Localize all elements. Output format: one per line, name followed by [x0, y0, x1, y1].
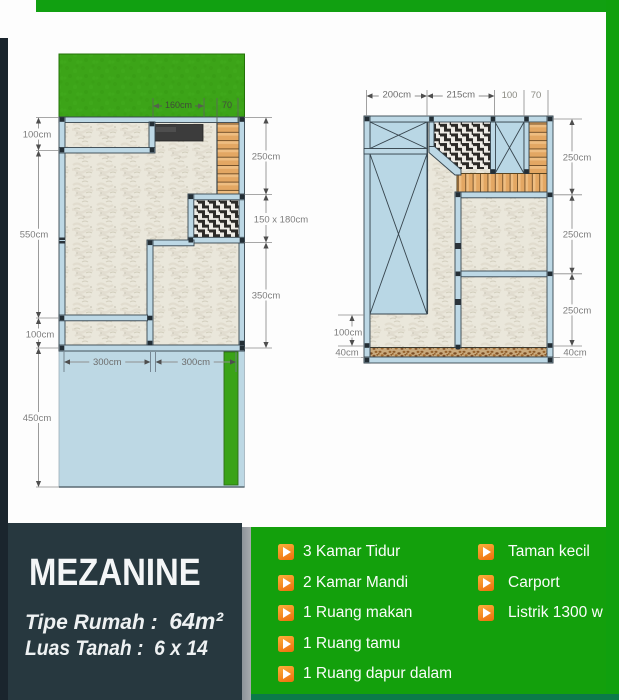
svg-text:215cm: 215cm	[446, 90, 475, 101]
svg-text:70: 70	[222, 100, 232, 110]
svg-text:100cm: 100cm	[334, 327, 363, 338]
svg-text:150 x 180cm: 150 x 180cm	[254, 215, 308, 226]
svg-text:300cm: 300cm	[93, 357, 122, 368]
svg-text:250cm: 250cm	[563, 230, 592, 241]
svg-text:250cm: 250cm	[252, 151, 281, 162]
svg-text:250cm: 250cm	[563, 152, 592, 163]
svg-text:450cm: 450cm	[23, 413, 52, 424]
svg-text:160cm: 160cm	[165, 100, 192, 110]
svg-text:40cm: 40cm	[335, 348, 358, 359]
svg-text:200cm: 200cm	[382, 90, 411, 101]
svg-text:100: 100	[502, 90, 518, 101]
svg-text:300cm: 300cm	[181, 357, 210, 368]
svg-text:550cm: 550cm	[20, 230, 49, 241]
svg-text:100cm: 100cm	[23, 129, 52, 140]
svg-text:100cm: 100cm	[26, 329, 55, 340]
svg-text:70: 70	[531, 90, 542, 101]
svg-text:350cm: 350cm	[252, 290, 281, 301]
svg-text:250cm: 250cm	[563, 305, 592, 316]
svg-text:40cm: 40cm	[563, 348, 586, 359]
